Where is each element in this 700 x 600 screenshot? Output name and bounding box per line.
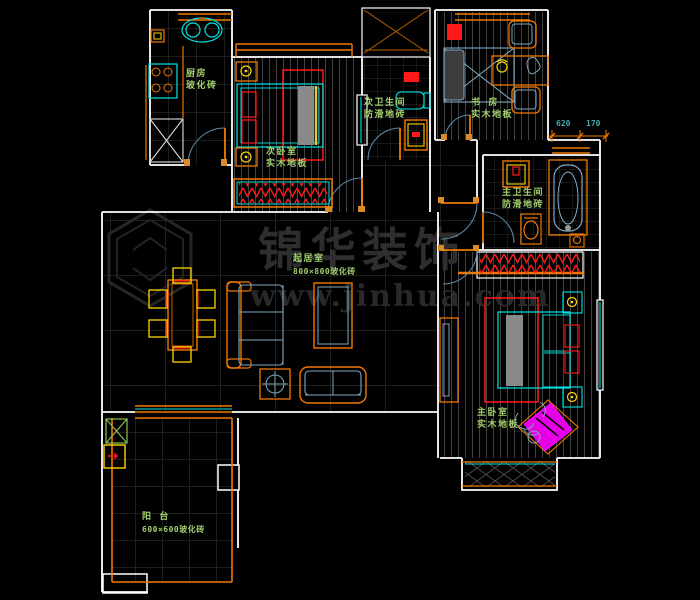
room-label-kitchen: 厨房 玻化砖	[186, 69, 218, 92]
shaft-brace	[364, 10, 428, 53]
wardrobe-icon	[480, 254, 580, 273]
bay-window-seat	[465, 461, 555, 487]
floor-plan-canvas: 锦华装饰 www.jinhua.com	[0, 0, 700, 600]
dimension-text: 620	[556, 119, 570, 128]
floor-plan-drawing: 锦华装饰 www.jinhua.com	[0, 0, 700, 600]
heater-icon	[404, 72, 419, 82]
equipment-box	[447, 24, 462, 40]
room-label-master-bedroom: 主卧室 实木地板	[477, 408, 519, 431]
watermark-url: www.jinhua.com	[249, 279, 551, 314]
room-label-living-room: 起居室 800×800玻化砖	[293, 254, 356, 277]
bath-window-icon	[552, 148, 590, 153]
watermark-brand: 锦华装饰	[258, 223, 466, 277]
dimension-text: 170	[586, 119, 600, 128]
bedroom-window-icon	[236, 44, 352, 57]
room-label-balcony: 阳 台 600×600玻化砖	[142, 512, 205, 535]
sink-icon	[405, 120, 427, 150]
room-label-master-bathroom: 主卫生间 防滑地砖	[502, 188, 544, 211]
room-label-secondary-bedroom: 次卧室 实木地板	[266, 147, 308, 170]
balcony-floor	[112, 418, 232, 582]
room-label-study: 书 房 实木地板	[471, 98, 513, 121]
room-label-secondary-bathroom: 次卫生间 防滑地砖	[364, 98, 406, 121]
wardrobe-icon	[234, 179, 332, 207]
